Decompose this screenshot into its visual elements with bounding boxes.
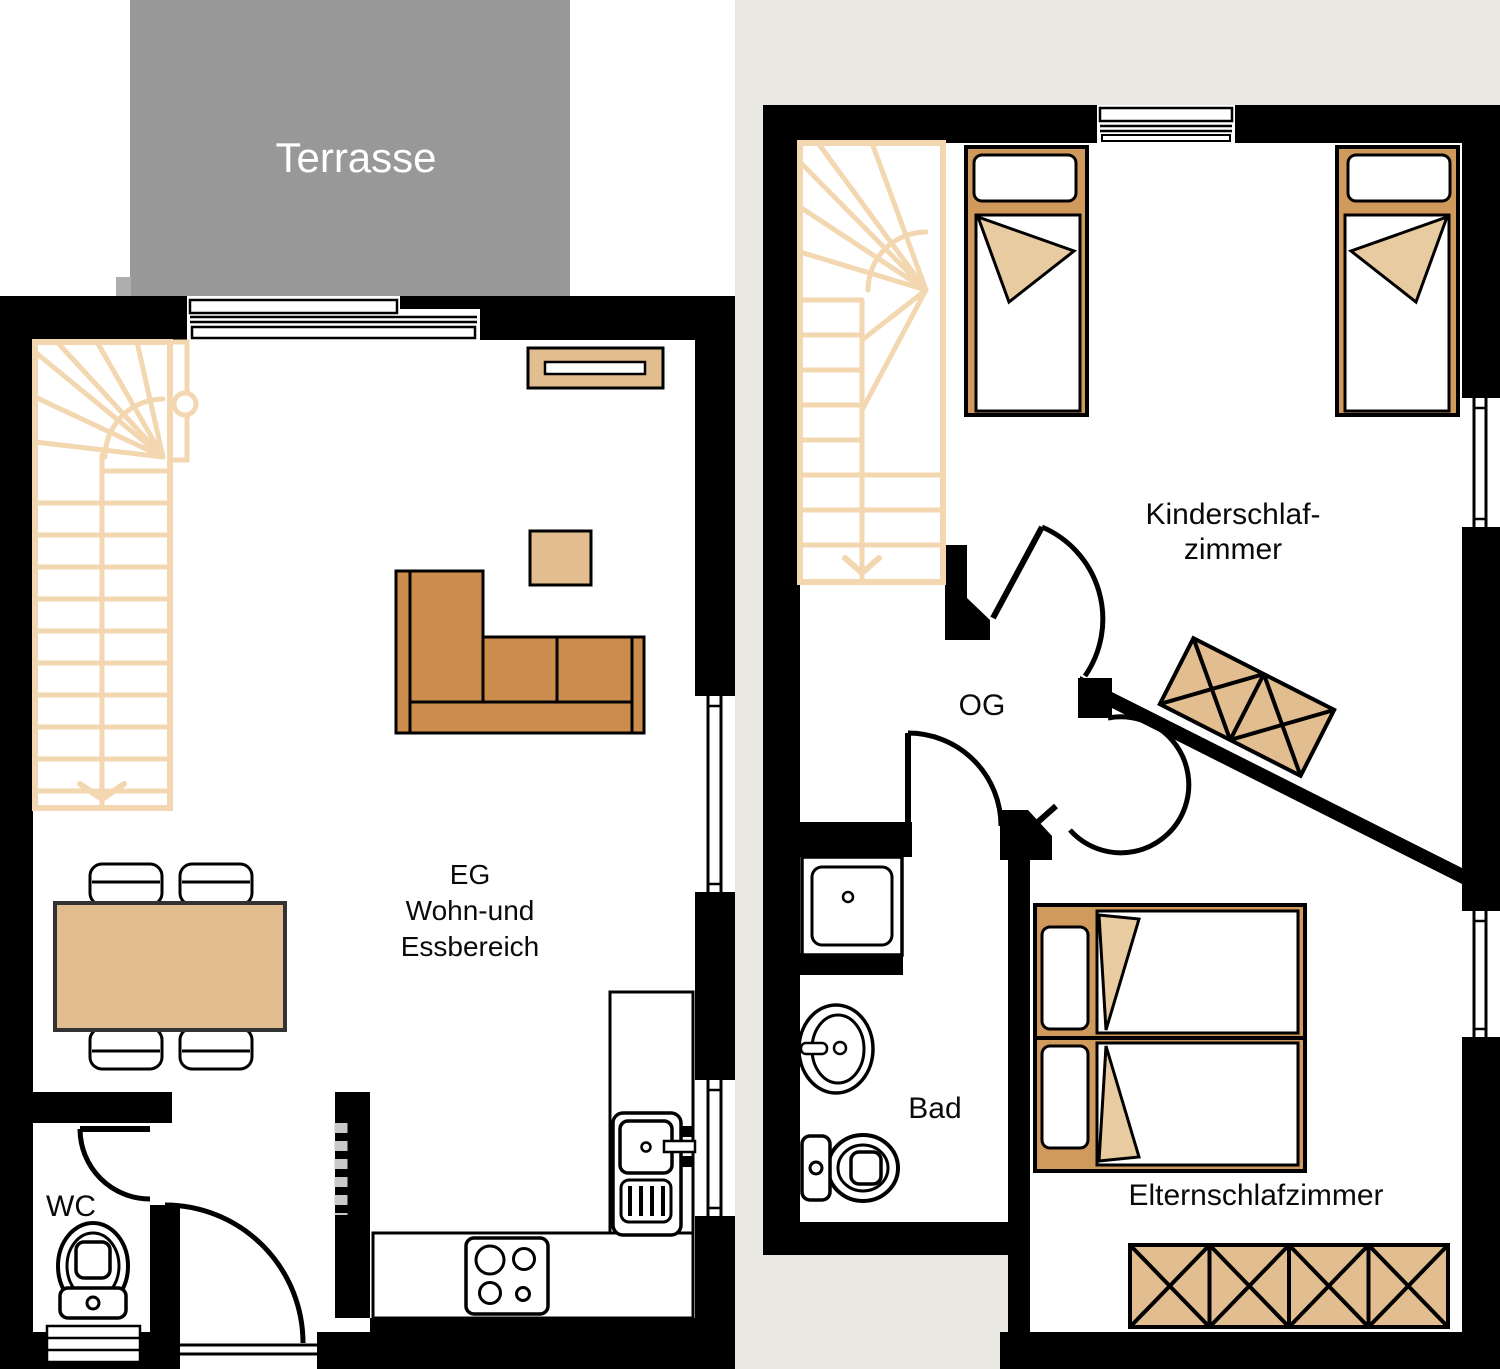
- sofa: [396, 571, 644, 733]
- floor-plan-og: Kinderschlaf- zimmer OG Bad Elternschlaf…: [763, 105, 1500, 1369]
- dining-chair: [180, 864, 252, 905]
- shower: [802, 857, 902, 955]
- eg-label-line1: EG: [450, 859, 490, 890]
- terrace-door: [187, 296, 480, 340]
- parents-room-label: Elternschlafzimmer: [1128, 1179, 1383, 1212]
- dining-chair: [90, 1028, 162, 1069]
- terrace-label: Terrasse: [275, 134, 436, 181]
- children-room-label-line2: zimmer: [1184, 533, 1282, 566]
- entrance-door-arc: [165, 1205, 303, 1343]
- staircase-eg: [35, 342, 196, 808]
- wc-label: WC: [46, 1190, 96, 1223]
- faucet-icon: [664, 1141, 695, 1152]
- wc-toilet: [58, 1223, 128, 1318]
- eg-label-line3: Essbereich: [401, 931, 540, 962]
- bathroom-label: Bad: [908, 1092, 961, 1125]
- og-window-parents: [1462, 911, 1500, 1037]
- floor-plan-eg: Terrasse: [0, 0, 735, 1369]
- entrance-opening: [180, 1332, 317, 1369]
- dining-set: [55, 864, 285, 1069]
- bath-bottom-wall: [763, 1222, 1030, 1255]
- entrance-door-leaf: [150, 1205, 180, 1343]
- og-window-children: [1462, 398, 1500, 527]
- wc-wall: [33, 1092, 172, 1123]
- eg-label-line2: Wohn-und: [406, 895, 535, 926]
- bathroom-toilet: [802, 1135, 898, 1201]
- eg-window-bottom: [47, 1326, 140, 1362]
- coffee-table: [530, 531, 591, 585]
- dining-chair: [180, 1028, 252, 1069]
- bathroom-sink: [799, 1005, 873, 1093]
- diagonal-wall-stub: [1078, 678, 1112, 718]
- og-label: OG: [959, 689, 1006, 722]
- terrace-step: [116, 277, 131, 296]
- parents-room-left-wall: [1008, 843, 1030, 1332]
- wc-door: [80, 1129, 150, 1199]
- floorplan-canvas: Terrasse: [0, 0, 1500, 1369]
- faucet-icon: [801, 1043, 827, 1054]
- child-bed-left: [966, 147, 1087, 415]
- eg-window-kitchen: [695, 1080, 735, 1216]
- kitchen-sink: [613, 1113, 695, 1235]
- wardrobe-parents: [1130, 1245, 1448, 1327]
- child-bed-right: [1337, 147, 1458, 415]
- children-room-label-line1: Kinderschlaf-: [1145, 498, 1320, 531]
- stove: [466, 1238, 548, 1314]
- og-window-top: [1097, 105, 1235, 143]
- parents-bed: [1035, 905, 1305, 1171]
- dining-chair: [90, 864, 162, 905]
- dining-table: [55, 903, 285, 1030]
- eg-window-living: [695, 696, 735, 892]
- kitchen: [373, 992, 695, 1318]
- bath-hall-wall: [800, 822, 912, 857]
- sideboard: [528, 348, 663, 388]
